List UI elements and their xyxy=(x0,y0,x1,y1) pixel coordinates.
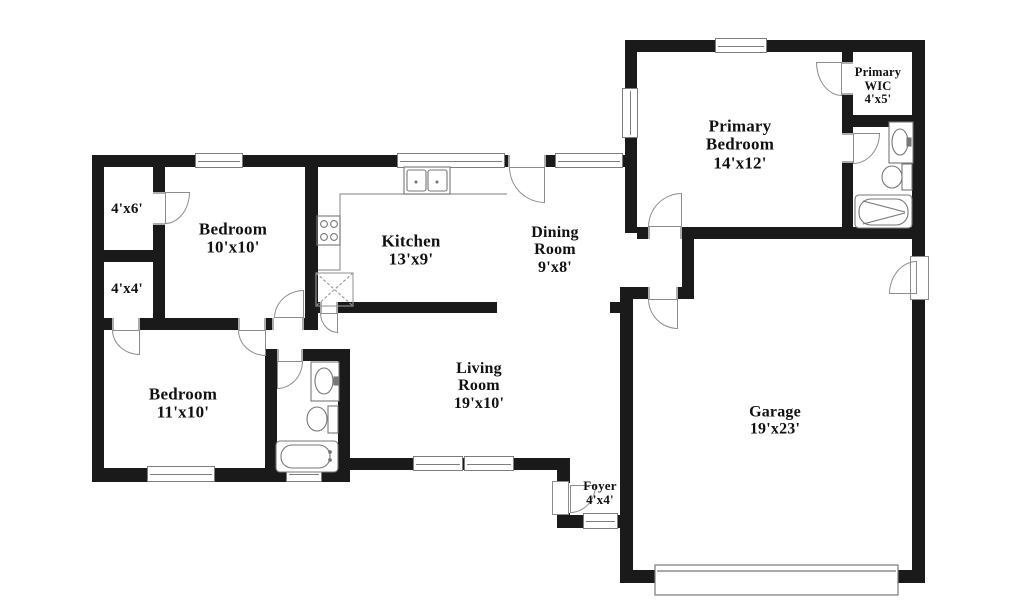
primary-bath-toilet xyxy=(882,164,912,190)
room-dims: 4'x4' xyxy=(111,281,143,297)
room-dims: 14'x12' xyxy=(706,154,774,172)
room-name: Garage xyxy=(749,404,801,421)
room-label-bedroom-10x10: Bedroom 10'x10' xyxy=(199,221,267,258)
room-name: Living xyxy=(454,360,504,377)
room-dims: 9'x8' xyxy=(531,259,578,276)
room-dims: 11'x10' xyxy=(149,404,217,422)
room-dims: 19'x10' xyxy=(454,395,504,412)
room-dims: 4'x4' xyxy=(583,493,616,507)
room-name: Bedroom xyxy=(199,221,267,239)
room-label-primary-wic: Primary WIC 4'x5' xyxy=(855,66,902,107)
room-name: Room xyxy=(454,377,504,394)
room-name: Bedroom xyxy=(706,136,774,154)
room-dims: 10'x10' xyxy=(199,239,267,257)
room-label-foyer: Foyer 4'x4' xyxy=(583,479,616,507)
room-dims: 13'x9' xyxy=(381,251,440,269)
hall-bath-toilet xyxy=(307,406,338,433)
hall-bath-vanity xyxy=(311,362,339,401)
room-dims: 4'x5' xyxy=(855,93,902,107)
stove xyxy=(317,216,340,245)
room-dims: 4'x6' xyxy=(111,201,143,217)
room-label-bedroom-11x10: Bedroom 11'x10' xyxy=(149,386,217,423)
hall-bath-tub xyxy=(276,441,338,472)
room-name: Room xyxy=(531,241,578,258)
room-name: Foyer xyxy=(583,479,616,493)
room-name: Primary xyxy=(706,117,774,135)
primary-bath-tub xyxy=(855,195,912,228)
room-name: Primary xyxy=(855,66,902,80)
room-label-closet-4x6: 4'x6' xyxy=(111,201,143,217)
room-label-kitchen: Kitchen 13'x9' xyxy=(381,233,440,270)
room-label-dining-room: Dining Room 9'x8' xyxy=(531,224,578,276)
room-name: Dining xyxy=(531,224,578,241)
kitchen-sink xyxy=(404,167,450,194)
room-label-garage: Garage 19'x23' xyxy=(749,404,801,439)
floor-plan: 4'x6' Bedroom 10'x10' Kitchen 13'x9' Din… xyxy=(0,0,1024,609)
room-label-closet-4x4: 4'x4' xyxy=(111,281,143,297)
room-name: Bedroom xyxy=(149,386,217,404)
room-name: WIC xyxy=(855,79,902,93)
pantry xyxy=(316,273,353,306)
room-label-living-room: Living Room 19'x10' xyxy=(454,360,504,412)
room-dims: 19'x23' xyxy=(749,421,801,438)
primary-bath-vanity xyxy=(889,122,913,163)
room-name: Kitchen xyxy=(381,233,440,251)
room-label-primary-bedroom: Primary Bedroom 14'x12' xyxy=(706,117,774,172)
garage-door xyxy=(655,565,898,595)
